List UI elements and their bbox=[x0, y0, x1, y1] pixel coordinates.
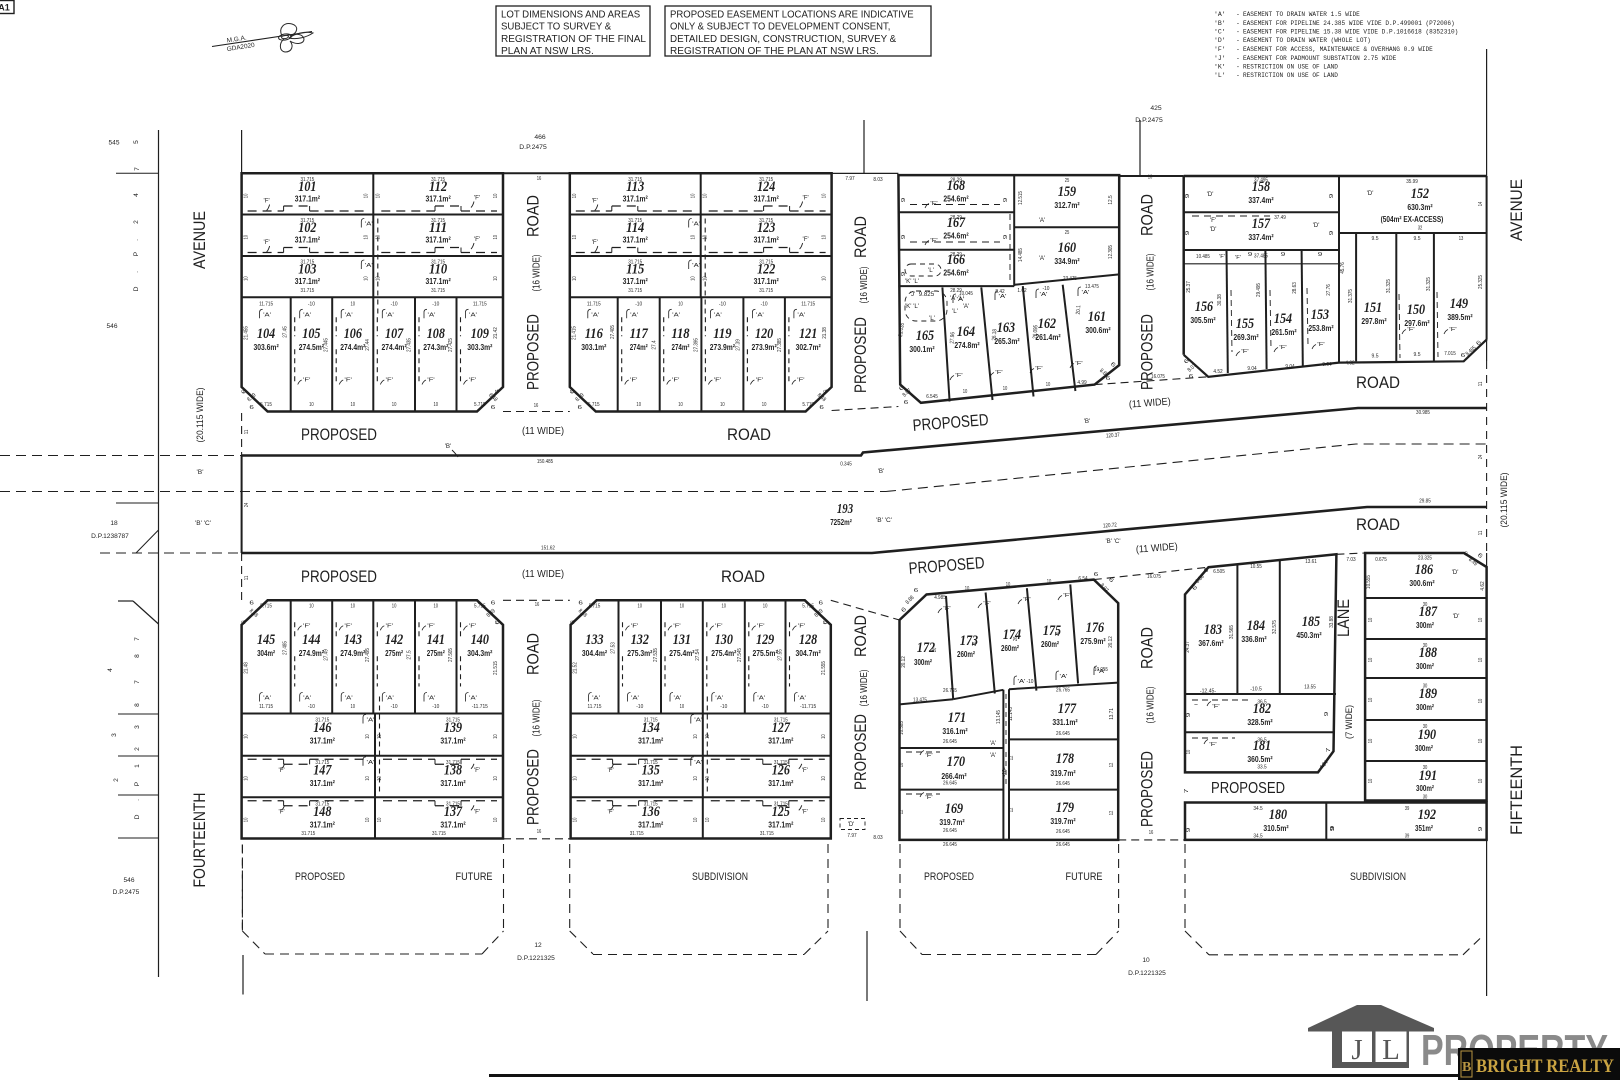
svg-text:-12.45-: -12.45- bbox=[1200, 689, 1216, 695]
svg-text:274.5m²: 274.5m² bbox=[299, 343, 324, 352]
svg-text:9.04: 9.04 bbox=[1285, 364, 1295, 370]
svg-text:PROPOSED EASEMENT LOCATIONS AR: PROPOSED EASEMENT LOCATIONS ARE INDICATI… bbox=[670, 10, 914, 21]
svg-text:'J': 'J' bbox=[1214, 55, 1226, 62]
svg-text:'F': 'F' bbox=[264, 239, 270, 246]
svg-text:EASEMENT FOR PIPELINE 24.385 W: EASEMENT FOR PIPELINE 24.385 WIDE VIDE D… bbox=[1243, 20, 1455, 27]
svg-text:7.97: 7.97 bbox=[845, 176, 854, 182]
svg-text:ROAD: ROAD bbox=[525, 633, 543, 675]
svg-text:3: 3 bbox=[111, 733, 118, 737]
svg-text:'A': 'A' bbox=[756, 312, 764, 318]
svg-text:'F': 'F' bbox=[469, 378, 477, 384]
svg-text:139: 139 bbox=[444, 719, 463, 736]
svg-text:'F': 'F' bbox=[592, 198, 598, 205]
svg-text:9: 9 bbox=[1329, 194, 1335, 199]
svg-text:31.715: 31.715 bbox=[759, 288, 773, 294]
svg-text:'A': 'A' bbox=[1082, 290, 1090, 296]
svg-text:310.5m²: 310.5m² bbox=[1263, 824, 1288, 833]
svg-text:-11.715: -11.715 bbox=[800, 704, 816, 710]
svg-text:305.5m²: 305.5m² bbox=[1190, 316, 1215, 325]
svg-text:'A': 'A' bbox=[345, 312, 353, 318]
svg-text:10: 10 bbox=[680, 603, 685, 609]
svg-text:6: 6 bbox=[824, 389, 830, 394]
svg-text:5.715: 5.715 bbox=[260, 402, 272, 408]
svg-text:300.6m²: 300.6m² bbox=[1409, 579, 1434, 588]
svg-text:317.1m²: 317.1m² bbox=[638, 820, 663, 829]
svg-text:'A': 'A' bbox=[694, 718, 702, 724]
svg-text:PROPOSED: PROPOSED bbox=[924, 871, 974, 883]
svg-text:PROPOSED: PROPOSED bbox=[295, 871, 345, 883]
svg-text:165: 165 bbox=[916, 327, 935, 344]
svg-text:10: 10 bbox=[821, 818, 827, 823]
svg-text:304.4m²: 304.4m² bbox=[582, 649, 607, 658]
svg-text:120.37: 120.37 bbox=[1106, 432, 1120, 439]
svg-text:337.4m²: 337.4m² bbox=[1248, 196, 1273, 205]
svg-text:'F': 'F' bbox=[279, 767, 285, 774]
svg-text:300m²: 300m² bbox=[1416, 703, 1434, 712]
svg-text:6: 6 bbox=[570, 389, 576, 394]
svg-text:26.645: 26.645 bbox=[1056, 829, 1070, 835]
svg-text:11: 11 bbox=[244, 576, 250, 581]
svg-text:'F': 'F' bbox=[279, 808, 285, 815]
svg-text:31.325: 31.325 bbox=[1426, 277, 1432, 291]
svg-text:'A': 'A' bbox=[386, 312, 394, 318]
svg-text:P: P bbox=[133, 251, 140, 256]
svg-text:33.5: 33.5 bbox=[1257, 765, 1266, 771]
svg-text:317.1m²: 317.1m² bbox=[440, 820, 465, 829]
svg-text:-10.5: -10.5 bbox=[1250, 687, 1262, 693]
svg-text:PROPOSED: PROPOSED bbox=[852, 317, 870, 393]
svg-text:101: 101 bbox=[298, 178, 316, 195]
svg-text:-10: -10 bbox=[1027, 679, 1034, 685]
svg-text:9: 9 bbox=[1185, 194, 1191, 199]
svg-text:'D': 'D' bbox=[848, 822, 855, 828]
svg-text:'A': 'A' bbox=[365, 222, 373, 228]
svg-text:10: 10 bbox=[693, 818, 699, 823]
svg-text:'B': 'B' bbox=[197, 469, 204, 476]
svg-text:10: 10 bbox=[309, 402, 314, 408]
svg-text:31.715: 31.715 bbox=[301, 831, 315, 837]
svg-text:4.02: 4.02 bbox=[1345, 361, 1354, 367]
svg-text:'F': 'F' bbox=[1279, 345, 1287, 351]
svg-text:13: 13 bbox=[1459, 236, 1464, 242]
svg-text:27.4: 27.4 bbox=[652, 340, 658, 350]
svg-text:115: 115 bbox=[626, 261, 645, 278]
svg-text:8.03: 8.03 bbox=[873, 835, 882, 841]
svg-text:10: 10 bbox=[351, 402, 356, 408]
svg-text:6: 6 bbox=[1461, 353, 1466, 359]
svg-text:6: 6 bbox=[578, 405, 583, 411]
svg-text:REGISTRATION OF THE PLAN AT NS: REGISTRATION OF THE PLAN AT NSW LRS. bbox=[670, 46, 879, 57]
svg-text:24: 24 bbox=[244, 502, 250, 507]
svg-text:'A': 'A' bbox=[345, 696, 353, 702]
svg-text:'F': 'F' bbox=[802, 767, 808, 774]
svg-text:183: 183 bbox=[1204, 621, 1223, 638]
svg-text:317.1m²: 317.1m² bbox=[295, 277, 320, 286]
svg-text:2: 2 bbox=[113, 778, 120, 782]
svg-text:'B' 'C': 'B' 'C' bbox=[876, 517, 892, 524]
svg-text:6: 6 bbox=[1204, 568, 1209, 574]
svg-text:189: 189 bbox=[1419, 685, 1438, 702]
svg-text:156: 156 bbox=[1195, 298, 1214, 315]
svg-text:10: 10 bbox=[365, 734, 371, 739]
svg-text:21.48: 21.48 bbox=[244, 662, 250, 674]
svg-text:(504m² EX-ACCESS): (504m² EX-ACCESS) bbox=[1381, 215, 1444, 224]
svg-text:5.715: 5.715 bbox=[802, 402, 814, 408]
svg-text:9: 9 bbox=[1248, 252, 1253, 258]
svg-text:10: 10 bbox=[691, 276, 697, 281]
svg-text:'B': 'B' bbox=[445, 443, 452, 450]
svg-text:32.575: 32.575 bbox=[1272, 620, 1278, 634]
svg-text:D.P.1238787: D.P.1238787 bbox=[91, 533, 129, 540]
svg-text:10: 10 bbox=[493, 818, 499, 823]
svg-text:'C': 'C' bbox=[1214, 29, 1226, 36]
svg-text:30.985: 30.985 bbox=[1416, 410, 1430, 416]
svg-text:10: 10 bbox=[1006, 582, 1011, 588]
svg-text:'A': 'A' bbox=[674, 696, 682, 702]
svg-text:LANE: LANE bbox=[1335, 599, 1353, 637]
svg-text:11.715: 11.715 bbox=[588, 704, 602, 710]
svg-text:'A': 'A' bbox=[386, 696, 394, 702]
svg-text:(16 WIDE): (16 WIDE) bbox=[532, 255, 543, 292]
svg-text:D.P.1221325: D.P.1221325 bbox=[517, 955, 555, 962]
svg-text:10: 10 bbox=[573, 776, 579, 781]
svg-text:274.4m²: 274.4m² bbox=[340, 343, 365, 352]
svg-text:-10: -10 bbox=[720, 704, 727, 710]
svg-text:6.54: 6.54 bbox=[1078, 576, 1088, 582]
svg-text:10: 10 bbox=[572, 194, 578, 199]
svg-text:302.7m²: 302.7m² bbox=[796, 343, 821, 352]
svg-text:114: 114 bbox=[626, 219, 645, 236]
svg-text:16: 16 bbox=[537, 829, 542, 835]
svg-text:145: 145 bbox=[257, 631, 276, 648]
svg-text:-: - bbox=[1236, 55, 1240, 62]
svg-text:-10: -10 bbox=[635, 301, 642, 307]
svg-text:122: 122 bbox=[757, 261, 776, 278]
svg-text:131: 131 bbox=[673, 631, 691, 648]
svg-text:DETAILED DESIGN, CONSTRUCTION,: DETAILED DESIGN, CONSTRUCTION, SURVEY & bbox=[670, 34, 896, 45]
svg-text:'J' 9.825: 'J' 9.825 bbox=[910, 291, 935, 298]
svg-text:(16 WIDE): (16 WIDE) bbox=[859, 670, 870, 707]
svg-text:'A': 'A' bbox=[263, 312, 271, 318]
svg-text:27.485: 27.485 bbox=[283, 641, 289, 655]
svg-text:10: 10 bbox=[363, 276, 369, 281]
svg-text:-: - bbox=[1236, 64, 1240, 71]
svg-text:'A': 'A' bbox=[631, 696, 639, 702]
svg-text:159: 159 bbox=[1058, 183, 1077, 200]
svg-text:'F': 'F' bbox=[474, 236, 480, 243]
svg-text:-10: -10 bbox=[719, 301, 726, 307]
svg-text:10: 10 bbox=[244, 194, 250, 199]
svg-text:132: 132 bbox=[631, 631, 650, 648]
svg-text:274.3m²: 274.3m² bbox=[423, 343, 448, 352]
svg-text:10: 10 bbox=[722, 603, 727, 609]
svg-text:(16 WIDE): (16 WIDE) bbox=[532, 700, 543, 737]
svg-text:300m²: 300m² bbox=[1416, 621, 1434, 630]
svg-text:123: 123 bbox=[757, 219, 776, 236]
svg-text:'F': 'F' bbox=[983, 601, 991, 607]
svg-text:26.645: 26.645 bbox=[1056, 731, 1070, 737]
svg-text:146: 146 bbox=[313, 719, 332, 736]
svg-text:163: 163 bbox=[997, 319, 1016, 336]
svg-text:6: 6 bbox=[571, 620, 577, 625]
svg-text:12.515: 12.515 bbox=[1018, 191, 1024, 205]
svg-text:26.645: 26.645 bbox=[943, 781, 957, 787]
svg-text:ROAD: ROAD bbox=[1356, 516, 1400, 534]
svg-text:191: 191 bbox=[1419, 767, 1437, 784]
svg-text:-10: -10 bbox=[308, 301, 315, 307]
svg-text:28.63: 28.63 bbox=[1292, 282, 1298, 294]
svg-text:10: 10 bbox=[363, 235, 369, 240]
svg-text:172: 172 bbox=[917, 639, 936, 656]
svg-text:16: 16 bbox=[535, 602, 540, 608]
svg-text:11.145: 11.145 bbox=[1008, 707, 1014, 721]
svg-text:ROAD: ROAD bbox=[525, 195, 543, 237]
svg-text:26: 26 bbox=[1055, 631, 1061, 636]
svg-text:'F': 'F' bbox=[930, 201, 938, 207]
svg-text:'A': 'A' bbox=[263, 696, 271, 702]
svg-text:30.38: 30.38 bbox=[1217, 294, 1223, 306]
svg-text:4: 4 bbox=[133, 193, 140, 197]
svg-text:10: 10 bbox=[678, 402, 683, 408]
svg-text:PROPOSED: PROPOSED bbox=[1211, 780, 1285, 797]
svg-text:12: 12 bbox=[534, 942, 542, 949]
svg-text:'F': 'F' bbox=[631, 623, 639, 629]
svg-text:'L': 'L' bbox=[929, 315, 935, 322]
svg-text:150: 150 bbox=[1407, 301, 1426, 318]
svg-text:27.445: 27.445 bbox=[324, 338, 330, 352]
svg-text:10: 10 bbox=[691, 235, 697, 240]
svg-text:5.715: 5.715 bbox=[260, 603, 272, 609]
svg-text:-10: -10 bbox=[391, 704, 398, 710]
svg-text:39: 39 bbox=[1405, 834, 1410, 840]
svg-text:-10: -10 bbox=[308, 704, 315, 710]
svg-text:P: P bbox=[134, 781, 141, 786]
svg-text:13.61: 13.61 bbox=[1305, 559, 1317, 565]
svg-text:6: 6 bbox=[1094, 572, 1099, 578]
svg-text:164: 164 bbox=[957, 323, 976, 340]
svg-text:105: 105 bbox=[302, 325, 321, 342]
svg-text:'F': 'F' bbox=[386, 378, 394, 384]
svg-text:'F': 'F' bbox=[1063, 593, 1071, 599]
svg-text:'F': 'F' bbox=[1075, 361, 1083, 367]
svg-text:6: 6 bbox=[819, 405, 824, 411]
svg-text:10: 10 bbox=[822, 194, 828, 199]
svg-text:27.395: 27.395 bbox=[694, 338, 700, 352]
svg-text:31.565: 31.565 bbox=[1229, 625, 1235, 639]
svg-text:260m²: 260m² bbox=[957, 650, 975, 659]
svg-text:'F': 'F' bbox=[797, 378, 805, 384]
svg-text:'F': 'F' bbox=[803, 236, 809, 243]
svg-text:303.3m²: 303.3m² bbox=[467, 343, 492, 352]
svg-text:275m²: 275m² bbox=[385, 649, 403, 658]
svg-text:'B': 'B' bbox=[1084, 418, 1091, 425]
svg-text:10: 10 bbox=[1478, 658, 1484, 663]
svg-text:27.405: 27.405 bbox=[610, 325, 616, 339]
svg-text:162: 162 bbox=[1038, 315, 1057, 332]
svg-text:274.4m²: 274.4m² bbox=[382, 343, 407, 352]
svg-text:'D': 'D' bbox=[1313, 222, 1320, 229]
svg-text:'D': 'D' bbox=[1214, 37, 1226, 44]
svg-text:16: 16 bbox=[534, 403, 539, 409]
svg-text:AVENUE: AVENUE bbox=[190, 211, 209, 269]
svg-text:25: 25 bbox=[1065, 178, 1070, 184]
svg-text:152: 152 bbox=[1411, 185, 1430, 202]
svg-text:26.095: 26.095 bbox=[1033, 325, 1040, 339]
svg-text:'A': 'A' bbox=[365, 263, 373, 269]
svg-text:'A': 'A' bbox=[672, 312, 680, 318]
svg-text:10: 10 bbox=[572, 276, 578, 281]
svg-text:RESTRICTION ON USE OF LAND: RESTRICTION ON USE OF LAND bbox=[1243, 72, 1338, 79]
svg-text:9: 9 bbox=[1003, 235, 1009, 240]
svg-text:153: 153 bbox=[1311, 306, 1330, 323]
svg-text:'F': 'F' bbox=[757, 623, 765, 629]
svg-text:9: 9 bbox=[1186, 828, 1192, 833]
svg-text:'A': 'A' bbox=[1060, 674, 1068, 680]
svg-text:317.1m²: 317.1m² bbox=[754, 277, 779, 286]
svg-text:21.52: 21.52 bbox=[573, 662, 579, 674]
svg-text:14.485: 14.485 bbox=[1018, 248, 1024, 262]
svg-text:10: 10 bbox=[762, 402, 767, 408]
svg-text:11.715: 11.715 bbox=[259, 301, 273, 307]
svg-text:'F': 'F' bbox=[1210, 217, 1216, 224]
svg-text:135: 135 bbox=[642, 761, 661, 778]
svg-text:31.325: 31.325 bbox=[1386, 279, 1392, 293]
svg-text:'D': 'D' bbox=[1210, 226, 1217, 233]
svg-text:275.3m²: 275.3m² bbox=[627, 649, 652, 658]
svg-text:10: 10 bbox=[1046, 382, 1051, 388]
svg-text:300m²: 300m² bbox=[1416, 784, 1434, 793]
svg-text:'A': 'A' bbox=[428, 312, 436, 318]
svg-text:26.765: 26.765 bbox=[943, 688, 957, 694]
svg-text:113: 113 bbox=[626, 178, 645, 195]
svg-text:127: 127 bbox=[772, 719, 791, 736]
svg-text:275m²: 275m² bbox=[427, 649, 445, 658]
svg-text:10: 10 bbox=[1368, 739, 1374, 744]
svg-text:FOURTEENTH: FOURTEENTH bbox=[191, 793, 209, 888]
svg-text:'A': 'A' bbox=[692, 222, 700, 228]
svg-text:254.6m²: 254.6m² bbox=[943, 269, 968, 278]
svg-text:'A': 'A' bbox=[367, 760, 375, 766]
svg-text:-: - bbox=[1194, 702, 1199, 708]
svg-text:179: 179 bbox=[1056, 799, 1075, 816]
svg-text:275.5m²: 275.5m² bbox=[753, 649, 778, 658]
svg-text:4.985: 4.985 bbox=[934, 595, 946, 601]
svg-text:12: 12 bbox=[1009, 756, 1015, 761]
svg-text:177: 177 bbox=[1058, 700, 1077, 717]
svg-text:'F': 'F' bbox=[672, 378, 680, 384]
svg-text:'F': 'F' bbox=[715, 623, 723, 629]
svg-text:'B': 'B' bbox=[1214, 20, 1226, 27]
svg-text:'F': 'F' bbox=[608, 767, 614, 774]
svg-text:10: 10 bbox=[1186, 750, 1192, 755]
svg-text:300m²: 300m² bbox=[1416, 662, 1434, 671]
svg-text:9: 9 bbox=[1281, 252, 1286, 258]
svg-text:(16 WIDE): (16 WIDE) bbox=[1146, 254, 1157, 291]
svg-text:10: 10 bbox=[377, 818, 383, 823]
svg-text:260m²: 260m² bbox=[1041, 640, 1059, 649]
svg-text:112: 112 bbox=[429, 178, 448, 195]
svg-text:'F': 'F' bbox=[1407, 327, 1415, 333]
svg-text:31.715: 31.715 bbox=[630, 831, 644, 837]
svg-text:6: 6 bbox=[819, 600, 824, 606]
svg-text:317.1m²: 317.1m² bbox=[754, 194, 779, 203]
svg-text:PROPOSED: PROPOSED bbox=[301, 568, 377, 586]
svg-text:SUBDIVISION: SUBDIVISION bbox=[692, 871, 748, 883]
svg-text:'D': 'D' bbox=[1207, 191, 1214, 198]
svg-text:317.1m²: 317.1m² bbox=[310, 820, 335, 829]
svg-text:10: 10 bbox=[693, 776, 699, 781]
svg-text:-: - bbox=[1236, 46, 1240, 53]
svg-text:1.62: 1.62 bbox=[1017, 288, 1026, 294]
svg-text:25.37: 25.37 bbox=[1186, 281, 1192, 293]
svg-text:31.375: 31.375 bbox=[1348, 289, 1354, 303]
svg-text:9: 9 bbox=[1003, 198, 1009, 203]
svg-text:27.44: 27.44 bbox=[365, 339, 371, 351]
svg-text:140: 140 bbox=[471, 631, 490, 648]
svg-text:128: 128 bbox=[799, 631, 818, 648]
svg-text:9: 9 bbox=[1330, 826, 1336, 831]
svg-text:'F': 'F' bbox=[1212, 704, 1220, 710]
svg-text:'B': 'B' bbox=[878, 468, 885, 475]
svg-text:110: 110 bbox=[429, 261, 448, 278]
svg-text:161: 161 bbox=[1088, 308, 1106, 325]
svg-text:120.72: 120.72 bbox=[1103, 522, 1117, 529]
svg-text:-10: -10 bbox=[432, 704, 439, 710]
svg-text:(11 WIDE): (11 WIDE) bbox=[522, 569, 564, 580]
svg-text:7: 7 bbox=[134, 637, 141, 641]
svg-text:6: 6 bbox=[904, 400, 909, 406]
svg-text:32: 32 bbox=[1418, 226, 1423, 232]
svg-text:6: 6 bbox=[242, 620, 248, 625]
svg-text:253.8m²: 253.8m² bbox=[1308, 324, 1333, 333]
svg-text:26.18: 26.18 bbox=[992, 329, 999, 341]
svg-text:176: 176 bbox=[1086, 619, 1105, 636]
svg-text:30: 30 bbox=[1423, 643, 1428, 649]
svg-text:26: 26 bbox=[932, 647, 938, 652]
svg-text:ROAD: ROAD bbox=[1139, 194, 1157, 236]
svg-text:'A': 'A' bbox=[999, 294, 1007, 300]
svg-text:'A': 'A' bbox=[303, 696, 311, 702]
svg-text:27.76: 27.76 bbox=[1326, 284, 1332, 296]
svg-text:28.29: 28.29 bbox=[950, 178, 962, 184]
svg-text:'F': 'F' bbox=[925, 753, 933, 759]
svg-text:26.765: 26.765 bbox=[1056, 688, 1070, 694]
svg-text:129: 129 bbox=[756, 631, 775, 648]
svg-text:141: 141 bbox=[427, 631, 445, 648]
svg-text:-10: -10 bbox=[432, 301, 439, 307]
svg-text:10: 10 bbox=[899, 763, 905, 768]
svg-text:1: 1 bbox=[134, 764, 141, 768]
svg-text:6: 6 bbox=[1106, 376, 1111, 382]
svg-text:275.9m²: 275.9m² bbox=[1080, 637, 1105, 646]
svg-text:'F': 'F' bbox=[608, 808, 614, 815]
svg-text:REGISTRATION OF THE FINAL: REGISTRATION OF THE FINAL bbox=[501, 34, 646, 45]
svg-text:'K' 'L': 'K' 'L' bbox=[905, 303, 919, 310]
svg-text:316.1m²: 316.1m² bbox=[942, 727, 967, 736]
svg-text:(20.115 WIDE): (20.115 WIDE) bbox=[195, 388, 206, 443]
svg-text:254.6m²: 254.6m² bbox=[943, 195, 968, 204]
svg-text:J: J bbox=[1351, 1034, 1362, 1066]
svg-text:317.1m²: 317.1m² bbox=[426, 277, 451, 286]
svg-text:186: 186 bbox=[1415, 561, 1434, 578]
svg-text:6: 6 bbox=[249, 600, 254, 606]
svg-text:151.62: 151.62 bbox=[541, 546, 555, 552]
svg-text:PLAN AT NSW LRS.: PLAN AT NSW LRS. bbox=[501, 46, 594, 57]
svg-text:26: 26 bbox=[972, 641, 978, 646]
svg-text:'A': 'A' bbox=[591, 312, 599, 318]
svg-text:169: 169 bbox=[945, 800, 964, 817]
svg-text:.: . bbox=[133, 271, 140, 273]
